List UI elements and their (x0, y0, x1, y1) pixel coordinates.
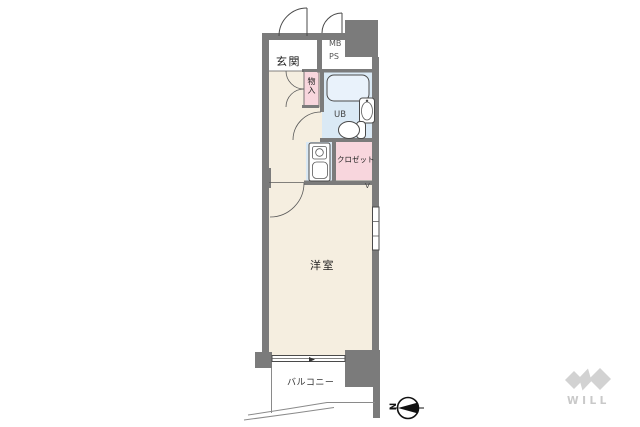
ps-label: PS (329, 53, 339, 61)
entrance-label: 玄関 (276, 56, 301, 67)
toilet-bowl (339, 122, 360, 139)
floor-plan-drawing (0, 0, 640, 427)
wall-block-top-right (345, 20, 378, 57)
wall-storage-top-edge (302, 69, 319, 72)
compass (392, 398, 424, 419)
right-wall-window (373, 207, 380, 250)
wall-entrance-divider (317, 36, 322, 71)
storage-label: 物入 (307, 77, 315, 95)
wall-right-upper (372, 57, 379, 207)
wall-right-mid (372, 250, 379, 355)
brand-logo-text: WILL (567, 396, 610, 407)
wall-block-bottom-right (345, 350, 380, 387)
balcony-curved-rail-outer (248, 403, 375, 416)
wall-storage-bottom-edge (302, 105, 319, 108)
closet-label: クロゼット (337, 156, 375, 164)
western-room-label: 洋室 (310, 260, 335, 271)
wall-below-mbps (317, 69, 378, 73)
entrance-door-arc (279, 8, 307, 36)
floor-plan-image: 玄関 MB PS 物入 UB クロゼット 洋室 バルコニー V N WILL (0, 0, 640, 427)
logo-diamond-right (589, 368, 611, 390)
bathtub (327, 75, 369, 101)
balcony-label: バルコニー (287, 379, 334, 388)
wall-left-bottom-pillar (255, 352, 272, 368)
wall-kitchen-closet-divider (332, 140, 336, 183)
mbps-door-arc (322, 13, 342, 33)
wall-left (262, 33, 269, 368)
wall-unitbath-left (320, 71, 324, 112)
mb-label: MB (329, 40, 341, 48)
bath-sink-faucet (366, 100, 368, 102)
wall-left-mid-pillar (262, 168, 271, 188)
compass-north-label: N (386, 403, 395, 411)
vent-mark-label: V (365, 183, 370, 190)
brand-logo-marks (565, 368, 611, 391)
unit-bath-label: UB (334, 111, 346, 120)
